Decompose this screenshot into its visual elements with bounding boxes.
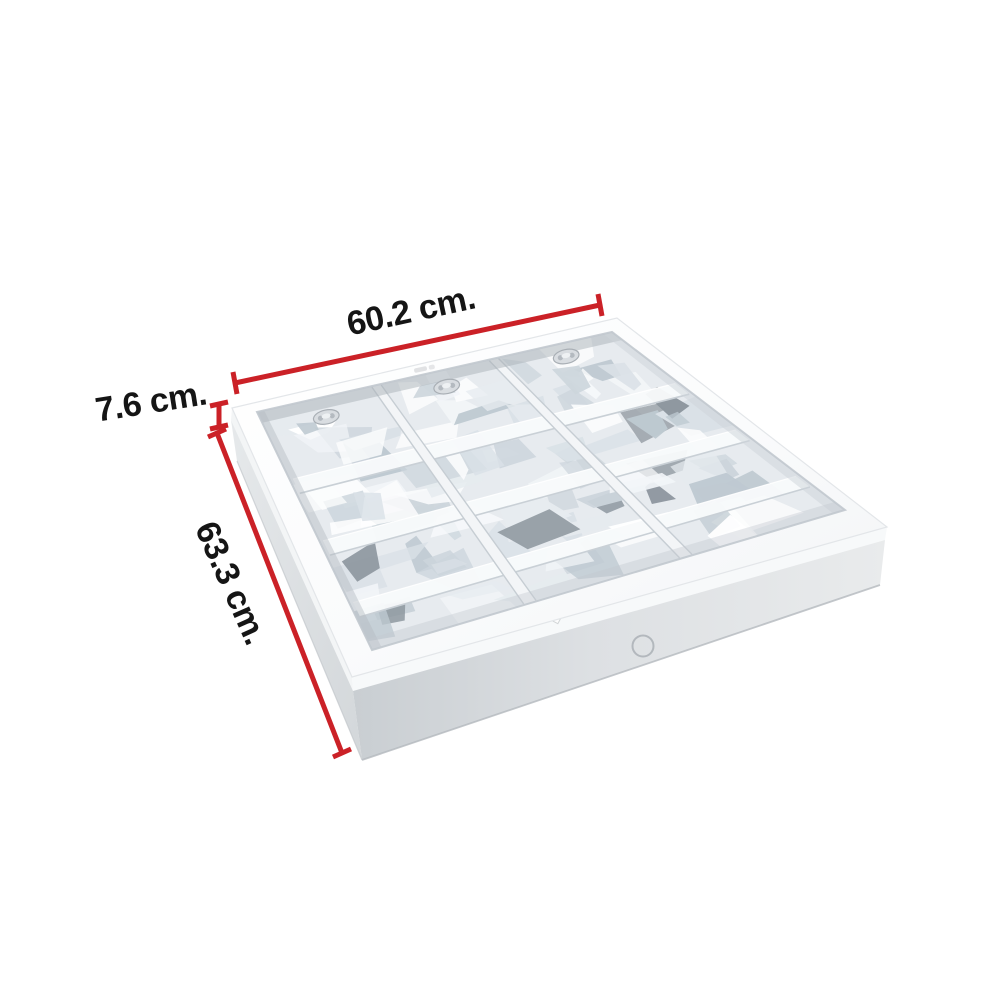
width-dimension-cap-right (598, 294, 602, 316)
height-dimension: 7.6 cm. (93, 374, 228, 429)
luminaire-product (231, 318, 887, 760)
height-dimension-label: 7.6 cm. (93, 374, 209, 429)
depth-dimension-label: 63.3 cm. (187, 516, 275, 650)
dimension-diagram-canvas: 60.2 cm. 7.6 cm. 63.3 cm. (0, 0, 1000, 1000)
height-dimension-cap-top (210, 402, 228, 406)
width-dimension-cap-left (233, 372, 237, 394)
product-dimension-image: 60.2 cm. 7.6 cm. 63.3 cm. (0, 0, 1000, 1000)
